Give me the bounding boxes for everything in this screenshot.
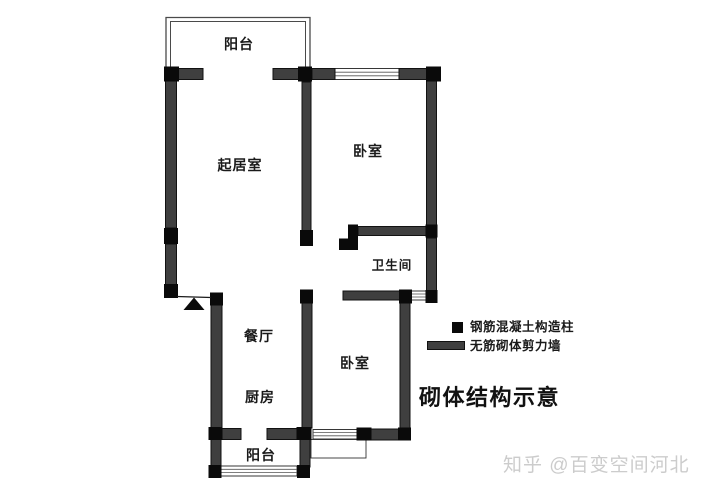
room-label-balcony-top: 阳台 — [224, 34, 254, 54]
column-top-right — [426, 67, 441, 82]
column-left-mid — [164, 228, 178, 244]
wall-dining-bedroom2-divider — [302, 303, 312, 428]
wall-bathroom-south — [343, 291, 400, 300]
wall-balcony-bottom-west — [211, 439, 221, 467]
legend-column-label: 钢筋混凝土构造柱 — [470, 316, 574, 335]
column-kitchen-sw — [209, 427, 223, 440]
room-label-dining-room: 餐厅 — [244, 326, 274, 346]
room-label-living-room: 起居室 — [218, 155, 263, 175]
wall-kitchen-south-b — [267, 429, 298, 440]
column-bedroom2-se — [398, 428, 411, 441]
wall-top-b — [273, 69, 299, 80]
wall-right-lower — [427, 238, 437, 291]
entrance-marker — [177, 297, 211, 311]
wall-bedroom2-east — [400, 303, 410, 429]
column-left-bottom — [164, 284, 178, 298]
wall-bedroom2-south — [371, 429, 399, 440]
floor-plan-svg — [0, 0, 720, 498]
column-right-mid — [426, 225, 438, 238]
floor-plan-page: 阳台 起居室 卧室 卫生间 餐厅 厨房 卧室 阳台 钢筋混凝土构造柱 无筋砌体剪… — [0, 0, 720, 498]
room-label-bedroom-1: 卧室 — [353, 141, 383, 161]
wall-dining-west — [211, 305, 222, 428]
wall-bathroom-north — [358, 227, 427, 236]
wall-left-lower — [166, 244, 177, 285]
wall-right-upper — [427, 81, 437, 225]
window-top-bedroom1 — [335, 69, 399, 80]
room-label-kitchen: 厨房 — [245, 387, 275, 407]
column-bathroom-se — [399, 290, 412, 304]
window-bathroom-south — [412, 291, 427, 300]
entrance-line — [177, 297, 211, 298]
wall-living-bedroom1-divider — [302, 82, 311, 231]
column-kitchen-se — [297, 427, 312, 440]
wall-left-upper — [166, 81, 177, 228]
legend-wall-label: 无筋砌体剪力墙 — [470, 335, 561, 354]
watermark-text: 知乎 @百变空间河北 — [503, 450, 690, 477]
window-bedroom2-south — [313, 430, 357, 440]
wall-kitchen-south-a — [222, 429, 241, 440]
column-bedroom2-south-mid — [357, 428, 372, 441]
column-right-bottom — [426, 290, 438, 303]
column-dining-nw — [210, 293, 223, 306]
wall-top-c — [312, 69, 335, 80]
room-label-balcony-bottom: 阳台 — [246, 445, 276, 465]
column-dining-ne — [300, 290, 313, 304]
column-divider-bottom — [300, 230, 313, 246]
window-balcony-bottom — [221, 466, 297, 476]
legend-column-swatch-icon — [452, 322, 463, 333]
wall-top-d — [399, 69, 427, 80]
column-balcony-se — [297, 465, 310, 478]
legend-wall-swatch-icon — [427, 341, 465, 350]
column-top-middle — [298, 67, 312, 82]
room-label-bathroom: 卫生间 — [372, 255, 413, 274]
wall-top-a — [178, 69, 203, 80]
ac-ledge-outline — [311, 440, 366, 459]
plan-title: 砌体结构示意 — [419, 380, 560, 412]
column-balcony-sw — [209, 465, 222, 478]
wall-balcony-bottom-east — [300, 439, 310, 467]
column-bathroom-l-shape — [339, 225, 358, 251]
entrance-arrow-icon — [184, 298, 205, 311]
room-label-bedroom-2: 卧室 — [340, 353, 370, 373]
column-top-left — [164, 67, 179, 82]
